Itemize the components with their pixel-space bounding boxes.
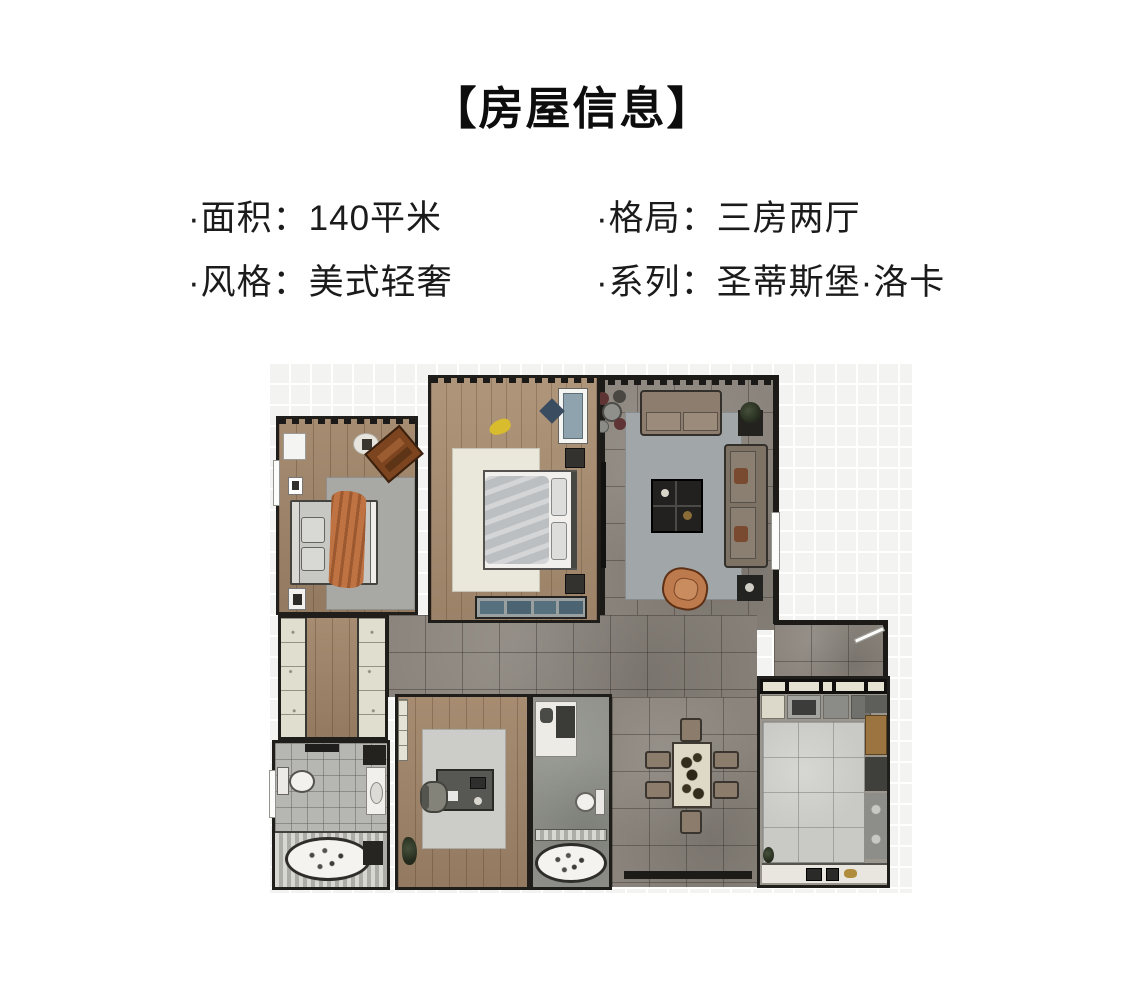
stool xyxy=(613,390,626,403)
nightstand xyxy=(565,448,585,468)
page-title: 【房屋信息】 xyxy=(0,72,1145,137)
kitchen-counter-mid xyxy=(823,695,849,719)
info-style: ·风格：美式轻奢 xyxy=(188,254,453,305)
master-cabinet xyxy=(283,433,306,460)
dining-chair-top xyxy=(680,718,702,742)
sofa-cushion xyxy=(683,412,718,431)
toilet-tank xyxy=(277,767,289,795)
table-decor xyxy=(661,489,669,497)
kitchen-wood-cabinet xyxy=(865,715,887,755)
floor-plan xyxy=(268,362,912,893)
dining-bottom-window xyxy=(624,871,752,879)
dining-chair-right xyxy=(713,751,739,769)
kitchen-counter-left xyxy=(761,695,785,719)
wardrobe-left xyxy=(281,618,307,737)
kitchen-plant xyxy=(763,847,774,863)
toilet2-bowl xyxy=(575,792,596,812)
bath1-sink xyxy=(370,782,383,804)
frame-art xyxy=(292,481,299,490)
coffee-table-divider xyxy=(653,505,701,507)
bed2-headboard xyxy=(571,472,577,568)
sofa-pillow xyxy=(734,468,748,484)
room-second-bathroom xyxy=(530,694,612,890)
entry-top-wall xyxy=(774,620,888,625)
sink-basin xyxy=(826,868,839,881)
house-info-card: 【房屋信息】 ·面积：140平米 ·格局：三房两厅 ·风格：美式轻奢 ·系列：圣… xyxy=(0,0,1145,1000)
info-layout: ·格局：三房两厅 xyxy=(596,190,861,241)
table-decor xyxy=(745,583,754,592)
bath1-faucet xyxy=(363,841,383,865)
orange-throw xyxy=(328,490,366,588)
window-pane xyxy=(763,682,785,691)
bath1-counter-dark xyxy=(363,745,386,765)
table-decor xyxy=(683,511,692,520)
living-curtain-hatch xyxy=(608,380,772,385)
bath1-window xyxy=(269,770,276,818)
gold-faucet xyxy=(844,869,857,878)
bath2-mat xyxy=(535,829,607,841)
living-window xyxy=(771,512,780,570)
sofa-pillow xyxy=(734,526,748,542)
accent-chair-seat xyxy=(672,576,700,603)
tv-panel xyxy=(601,462,606,568)
room-second-bedroom xyxy=(428,375,600,623)
room-study xyxy=(395,694,530,890)
toy xyxy=(487,417,512,438)
wardrobe-door xyxy=(563,393,583,439)
bath2-sink xyxy=(540,708,553,723)
bed-pillow xyxy=(301,517,325,543)
bed-headboard xyxy=(292,502,300,583)
room-walkin-closet xyxy=(278,615,388,740)
bedroom2-curtain-hatch xyxy=(431,378,597,383)
kitchen-window-strip xyxy=(760,679,887,694)
window-pane xyxy=(868,682,884,691)
bath2-vanity xyxy=(535,701,577,757)
kitchen-stove-counter xyxy=(787,695,821,719)
kitchen-dark-cabinet xyxy=(865,757,887,791)
wall-frame xyxy=(288,477,303,495)
info-area: ·面积：140平米 xyxy=(188,190,442,241)
study-plant xyxy=(402,837,417,865)
sofa-long xyxy=(724,444,768,568)
sink-basin xyxy=(806,868,822,881)
window-pane xyxy=(836,682,864,691)
master-window xyxy=(273,460,280,506)
cooktop xyxy=(792,700,816,715)
dining-chair-right xyxy=(713,781,739,799)
room-main-bathroom xyxy=(272,740,390,890)
sofa-main xyxy=(640,390,722,436)
dining-chair-bottom xyxy=(680,810,702,834)
hallway-floor xyxy=(388,615,757,697)
bed-pillow xyxy=(301,547,325,571)
bed2-duvet xyxy=(485,476,549,564)
kitchen-side-shelf xyxy=(865,793,887,859)
room-kitchen xyxy=(757,676,890,888)
bench-cushion xyxy=(507,601,531,614)
stool xyxy=(614,418,626,430)
bench-cushion xyxy=(559,601,583,614)
laptop xyxy=(470,777,486,789)
window-bench xyxy=(475,596,587,619)
study-shelf xyxy=(398,699,408,761)
bed2-pillow xyxy=(551,522,567,560)
wardrobe-right xyxy=(357,618,385,737)
nightstand-decor xyxy=(293,594,302,605)
sofa-cushion xyxy=(646,412,681,431)
side-table-bottom xyxy=(737,575,763,601)
dining-table xyxy=(672,742,712,808)
toilet-bowl xyxy=(289,770,315,793)
bath2-cabinet xyxy=(556,706,575,738)
kitchen-floor xyxy=(762,721,865,863)
bench-cushion xyxy=(480,601,504,614)
kitchen-sink-counter xyxy=(762,863,887,883)
dining-chair-left xyxy=(645,751,671,769)
coffee-table xyxy=(651,479,703,533)
dining-chair-left xyxy=(645,781,671,799)
living-right-wall-lower xyxy=(773,570,779,624)
desk-decor xyxy=(474,797,482,805)
kitchen-tall-cabinet xyxy=(865,695,887,713)
bath2-bathtub xyxy=(535,843,607,883)
bed-footboard xyxy=(370,502,376,583)
bath1-shelf xyxy=(305,744,339,752)
bed2-pillow xyxy=(551,478,567,516)
living-plant xyxy=(740,402,761,423)
chair-back xyxy=(422,785,429,809)
master-curtain-hatch xyxy=(279,419,415,424)
office-chair xyxy=(420,781,448,813)
info-series: ·系列：圣蒂斯堡·洛卡 xyxy=(596,254,945,305)
bench-cushion xyxy=(534,601,556,614)
living-right-wall-upper xyxy=(773,375,779,512)
bedroom2-bed xyxy=(483,470,577,570)
nightstand xyxy=(565,574,585,594)
bath1-bathtub xyxy=(285,837,371,881)
master-dresser xyxy=(364,425,424,484)
master-nightstand xyxy=(288,588,306,610)
window-pane xyxy=(789,682,819,691)
window-pane xyxy=(823,682,832,691)
room-master-bedroom xyxy=(276,416,418,615)
bath1-vanity xyxy=(366,767,386,815)
toilet2-tank xyxy=(595,789,605,815)
wardrobe xyxy=(558,388,588,444)
